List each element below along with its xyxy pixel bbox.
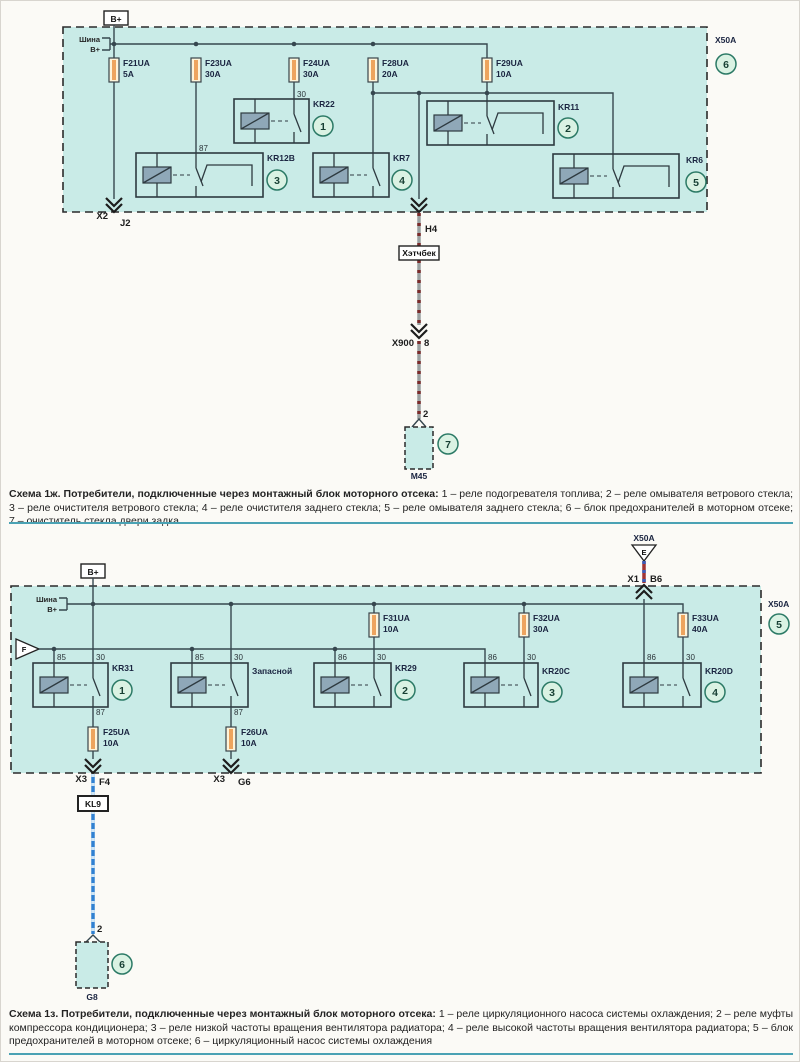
svg-text:4: 4 <box>399 175 405 187</box>
svg-text:F29UA: F29UA <box>496 58 523 68</box>
svg-text:40A: 40A <box>692 624 708 634</box>
svg-text:86: 86 <box>338 653 347 662</box>
schematic-1z: B+ X50A E X1 B6 Шина B+ F <box>1 531 800 1062</box>
svg-text:F4: F4 <box>99 777 111 788</box>
svg-text:X50A: X50A <box>715 35 736 45</box>
svg-text:KL9: KL9 <box>85 799 101 809</box>
svg-text:F31UA: F31UA <box>383 613 410 623</box>
svg-text:Хэтчбек: Хэтчбек <box>402 248 436 258</box>
section-divider <box>9 522 793 524</box>
svg-text:F: F <box>22 645 27 654</box>
svg-text:6: 6 <box>119 959 125 971</box>
svg-text:F21UA: F21UA <box>123 58 150 68</box>
pin-30-label: 30 <box>297 90 306 99</box>
svg-text:F26UA: F26UA <box>241 727 268 737</box>
svg-text:F24UA: F24UA <box>303 58 330 68</box>
svg-text:Запасной: Запасной <box>252 666 292 676</box>
caption-title-2: Схема 1з. Потребители, подключенные чере… <box>9 1008 436 1020</box>
svg-text:30A: 30A <box>303 69 319 79</box>
svg-text:F28UA: F28UA <box>382 58 409 68</box>
svg-text:10A: 10A <box>496 69 512 79</box>
svg-text:2: 2 <box>565 123 571 135</box>
connector-x50a: X50A 6 <box>715 35 736 74</box>
svg-text:30: 30 <box>234 653 243 662</box>
svg-text:7: 7 <box>445 439 451 451</box>
pin-87-label: 87 <box>199 144 208 153</box>
svg-text:30: 30 <box>96 653 105 662</box>
svg-text:KR11: KR11 <box>558 102 580 112</box>
svg-text:10A: 10A <box>103 738 119 748</box>
device-g8: 2 G8 6 <box>76 924 132 1002</box>
svg-text:H4: H4 <box>425 224 438 235</box>
svg-text:KR20C: KR20C <box>542 666 570 676</box>
b-plus-label: B+ <box>110 14 121 24</box>
svg-text:M45: M45 <box>411 471 428 481</box>
svg-text:X900: X900 <box>392 338 414 349</box>
splice-x900-arrow <box>411 324 427 338</box>
svg-text:20A: 20A <box>382 69 398 79</box>
svg-text:10A: 10A <box>383 624 399 634</box>
bus-label-line2: B+ <box>90 45 100 54</box>
svg-text:85: 85 <box>57 653 66 662</box>
svg-text:F33UA: F33UA <box>692 613 719 623</box>
svg-text:F25UA: F25UA <box>103 727 130 737</box>
svg-text:X50A: X50A <box>633 533 654 543</box>
svg-text:2: 2 <box>97 924 102 935</box>
svg-text:6: 6 <box>723 59 729 71</box>
svg-text:8: 8 <box>424 338 429 349</box>
svg-text:X3: X3 <box>213 774 225 785</box>
svg-text:87: 87 <box>96 708 105 717</box>
svg-text:2: 2 <box>423 409 428 420</box>
svg-text:KR31: KR31 <box>112 663 134 673</box>
svg-text:30: 30 <box>527 653 536 662</box>
svg-text:87: 87 <box>234 708 243 717</box>
svg-text:KR6: KR6 <box>686 155 703 165</box>
svg-text:30: 30 <box>686 653 695 662</box>
svg-text:1: 1 <box>320 121 326 133</box>
caption-schema-1z: Схема 1з. Потребители, подключенные чере… <box>9 1008 793 1049</box>
svg-text:KR22: KR22 <box>313 99 335 109</box>
svg-text:X1: X1 <box>627 574 639 585</box>
svg-text:KR12B: KR12B <box>267 153 295 163</box>
svg-text:X3: X3 <box>75 774 87 785</box>
svg-text:F32UA: F32UA <box>533 613 560 623</box>
svg-text:KR7: KR7 <box>393 153 410 163</box>
svg-text:G6: G6 <box>238 777 251 788</box>
schematic-1j: B+ Шина B+ F21UA 5A F23UA 30A F24UA 30A … <box>1 1 800 483</box>
svg-text:86: 86 <box>647 653 656 662</box>
svg-text:5: 5 <box>776 619 782 631</box>
section-divider-2 <box>9 1053 793 1055</box>
svg-text:X2: X2 <box>96 211 108 222</box>
svg-text:J2: J2 <box>120 218 131 229</box>
svg-text:G8: G8 <box>86 992 98 1002</box>
svg-text:30A: 30A <box>533 624 549 634</box>
fuse-relay-block-outline <box>63 27 707 212</box>
svg-text:2: 2 <box>402 685 408 697</box>
svg-text:KR20D: KR20D <box>705 666 733 676</box>
svg-text:F23UA: F23UA <box>205 58 232 68</box>
connector-x50a-2: X50A 5 <box>768 599 789 634</box>
svg-text:1: 1 <box>119 685 125 697</box>
svg-text:Шина: Шина <box>36 595 58 604</box>
svg-text:10A: 10A <box>241 738 257 748</box>
svg-text:30A: 30A <box>205 69 221 79</box>
svg-text:3: 3 <box>274 175 280 187</box>
b-plus-label-2: B+ <box>87 567 98 577</box>
caption-title: Схема 1ж. Потребители, подключенные чере… <box>9 488 439 500</box>
device-m45: 2 M45 7 <box>405 409 458 481</box>
svg-text:5: 5 <box>693 177 699 189</box>
svg-text:86: 86 <box>488 653 497 662</box>
wire-to-coolant-pump: KL9 <box>78 774 108 934</box>
svg-text:4: 4 <box>712 687 718 699</box>
svg-text:30: 30 <box>377 653 386 662</box>
svg-text:3: 3 <box>549 687 555 699</box>
manual-page: B+ Шина B+ F21UA 5A F23UA 30A F24UA 30A … <box>0 0 800 1062</box>
wire-to-rear-wiper: Хэтчбек X900 8 <box>392 213 439 419</box>
svg-text:X50A: X50A <box>768 599 789 609</box>
svg-text:5A: 5A <box>123 69 134 79</box>
svg-text:B6: B6 <box>650 574 662 585</box>
svg-text:E: E <box>641 548 646 557</box>
bus-label-line1: Шина <box>79 35 101 44</box>
svg-text:KR29: KR29 <box>395 663 417 673</box>
svg-text:B+: B+ <box>47 605 57 614</box>
svg-text:85: 85 <box>195 653 204 662</box>
